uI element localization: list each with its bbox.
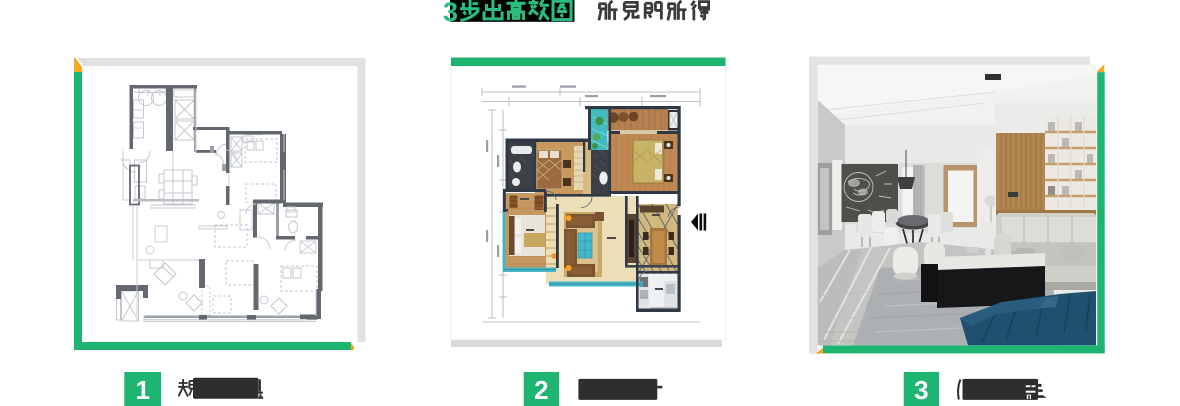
svg-text:3: 3 bbox=[443, 0, 458, 27]
svg-text:1: 1 bbox=[135, 375, 149, 405]
svg-text:3: 3 bbox=[914, 375, 928, 405]
svg-text:2: 2 bbox=[534, 375, 548, 405]
